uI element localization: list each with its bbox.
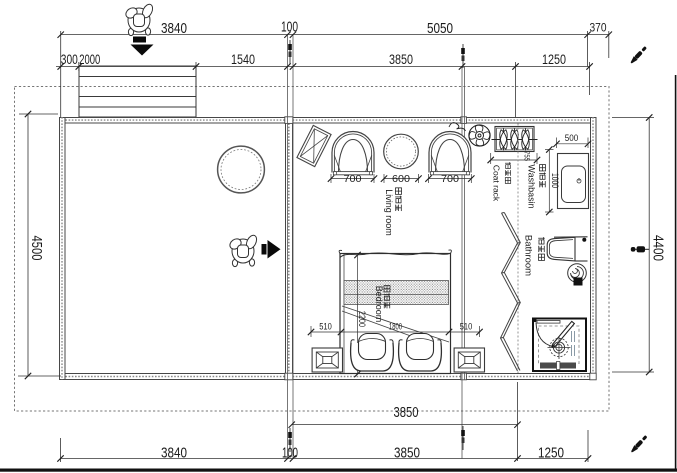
svg-text:3850: 3850 — [394, 445, 420, 462]
svg-text:4400: 4400 — [650, 235, 667, 261]
svg-text:Washbasin: Washbasin — [527, 164, 537, 208]
svg-text:2200: 2200 — [357, 311, 367, 327]
svg-text:370: 370 — [590, 21, 607, 35]
svg-text:Living room: Living room — [384, 189, 394, 236]
svg-text:2000: 2000 — [79, 52, 100, 67]
svg-text:1250: 1250 — [538, 445, 564, 462]
svg-text:1250: 1250 — [542, 52, 566, 67]
svg-text:1800: 1800 — [389, 322, 402, 332]
svg-text:510: 510 — [460, 322, 473, 332]
svg-text:100: 100 — [282, 445, 298, 462]
svg-text:700: 700 — [344, 174, 362, 185]
svg-text:1540: 1540 — [231, 52, 255, 67]
svg-text:3840: 3840 — [161, 445, 187, 462]
svg-text:755: 755 — [523, 151, 530, 161]
svg-text:700: 700 — [441, 174, 459, 185]
svg-text:Coat rack: Coat rack — [492, 165, 502, 202]
svg-text:3850: 3850 — [394, 405, 419, 421]
svg-text:4500: 4500 — [28, 236, 45, 261]
svg-text:100: 100 — [281, 19, 298, 36]
svg-text:1000: 1000 — [549, 173, 560, 188]
svg-text:Bedroom: Bedroom — [374, 286, 384, 323]
svg-text:300: 300 — [61, 52, 78, 67]
svg-text:5050: 5050 — [427, 20, 453, 37]
svg-text:Bathroom: Bathroom — [523, 235, 534, 276]
svg-text:3850: 3850 — [389, 52, 413, 67]
svg-text:3840: 3840 — [161, 20, 187, 37]
svg-text:600: 600 — [392, 174, 410, 185]
svg-text:500: 500 — [565, 133, 579, 144]
svg-text:510: 510 — [319, 322, 332, 332]
